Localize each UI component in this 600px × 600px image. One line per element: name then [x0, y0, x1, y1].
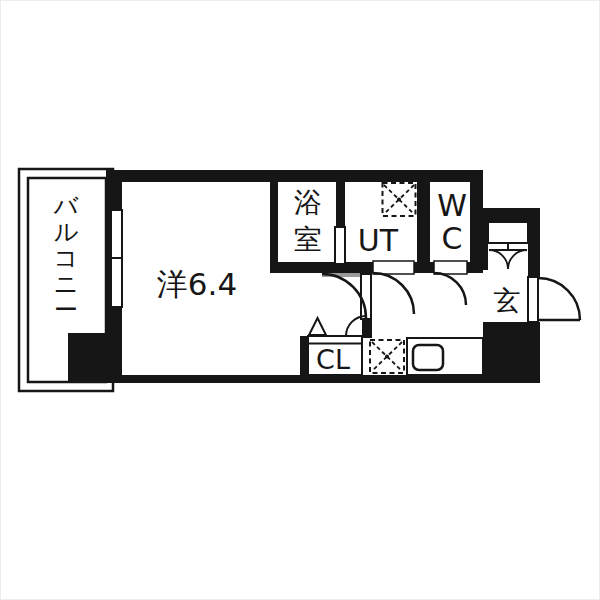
floorplan-canvas: バルコニー 洋6.4 浴室 UT WC CL	[0, 0, 600, 600]
entrance-label: 玄	[494, 285, 521, 316]
exterior-wall-bottom	[104, 375, 483, 383]
utility-wall-east	[417, 180, 430, 262]
entrance-wall-east	[528, 208, 540, 278]
bathroom-wall-east	[336, 180, 345, 228]
utility-label: UT	[358, 223, 399, 258]
refrigerator-space-icon	[370, 340, 404, 373]
utility-doorway	[373, 261, 414, 274]
floorplan-svg: バルコニー 洋6.4 浴室 UT WC CL	[0, 0, 600, 600]
entrance-wall-block-south	[483, 322, 540, 383]
entrance-door-leaf	[528, 277, 538, 322]
bathroom-door-leaf	[335, 227, 345, 264]
balcony-window-pane-1	[111, 210, 122, 258]
kitchen-sink-icon	[413, 345, 443, 370]
closet-label: CL	[316, 344, 350, 375]
toilet-wall-east	[470, 170, 483, 273]
washing-machine-pan-icon	[383, 183, 416, 216]
balcony-window-pane-2	[111, 258, 122, 307]
closet-wall-west	[300, 336, 308, 383]
balcony-label: バルコニー	[53, 192, 79, 324]
balcony-wall-block	[68, 333, 106, 383]
toilet-label: WC	[437, 188, 467, 256]
toilet-doorway	[434, 261, 467, 274]
main-room-label: 洋6.4	[157, 266, 237, 302]
bathroom-wall-west	[270, 180, 278, 273]
